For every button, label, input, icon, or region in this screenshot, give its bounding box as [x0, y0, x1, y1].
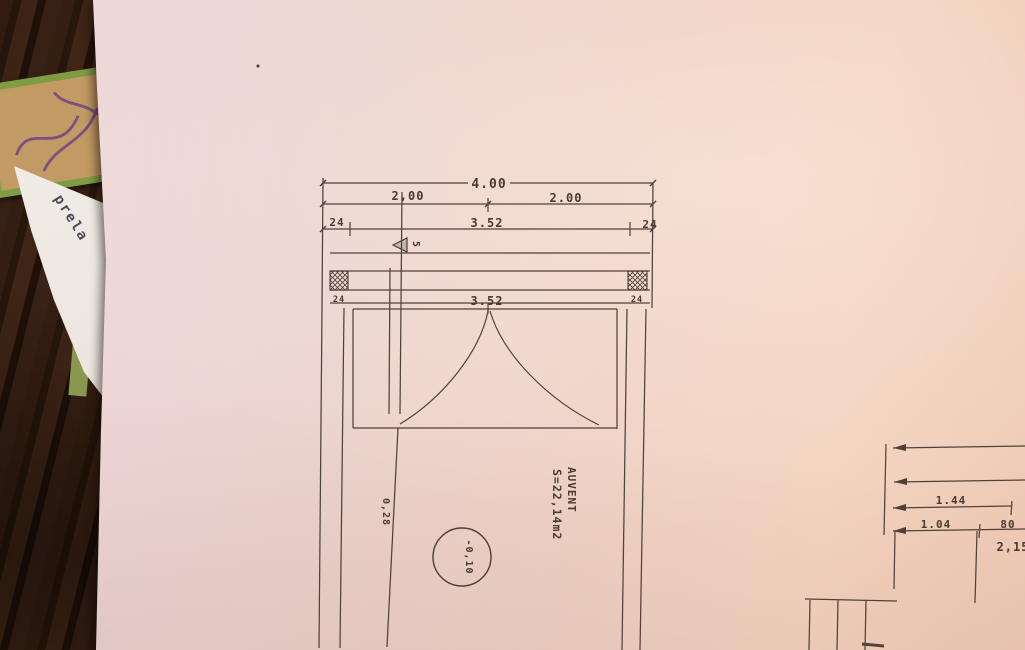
plan-labels: 4.00 2,00 2.00 24 3.52 24 3.52 24 24 5 A… — [329, 177, 657, 575]
dim-4-00-label: 4.00 — [471, 177, 506, 192]
dim-80-label: 80 — [1000, 518, 1015, 531]
dim-3-52-top-label: 3.52 — [471, 216, 504, 230]
dim-24-left-label: 24 — [329, 216, 344, 229]
drawing-sheet-wrap: 4.00 2,00 2.00 24 3.52 24 3.52 24 24 5 A… — [0, 0, 1025, 650]
door-swing — [400, 311, 599, 425]
datum-number-label: 5 — [410, 241, 421, 248]
room-area-label: S=22,14m2 — [550, 469, 564, 540]
photo-scene: prela — [0, 0, 1025, 650]
floor-plan-drawing: 4.00 2,00 2.00 24 3.52 24 3.52 24 24 5 A… — [0, 0, 1025, 650]
dim-2-00-left-label: 2,00 — [392, 189, 425, 203]
detail-labels: 1.44 1.04 80 2,15 — [921, 494, 1025, 554]
drawing-sheet: 4.00 2,00 2.00 24 3.52 24 3.52 24 24 5 A… — [0, 0, 1025, 650]
dimension-block — [320, 178, 656, 308]
level-mark-label: -0,10 — [463, 539, 474, 574]
level-marker-circle — [433, 528, 491, 586]
dim-24-right-label: 24 — [642, 218, 657, 231]
dim-1-04-label: 1.04 — [921, 518, 952, 531]
paper-speck — [256, 64, 259, 67]
dim-1-44-label: 1.44 — [936, 494, 967, 507]
posts — [330, 271, 647, 290]
dim-3-52-door-label: 3.52 — [471, 294, 504, 308]
side-detail-drawing — [805, 444, 1025, 650]
dim-2-00-right-label: 2.00 — [550, 191, 583, 205]
awning-outline — [319, 192, 650, 650]
datum-triangle-icon — [393, 238, 407, 252]
post-24-left-label: 24 — [333, 295, 345, 305]
dim-2-15-label: 2,15 — [997, 540, 1025, 554]
dim-0-28-label: 0,28 — [380, 498, 391, 526]
post-24-right-label: 24 — [631, 295, 643, 305]
room-name-label: AUVENT — [565, 467, 578, 513]
